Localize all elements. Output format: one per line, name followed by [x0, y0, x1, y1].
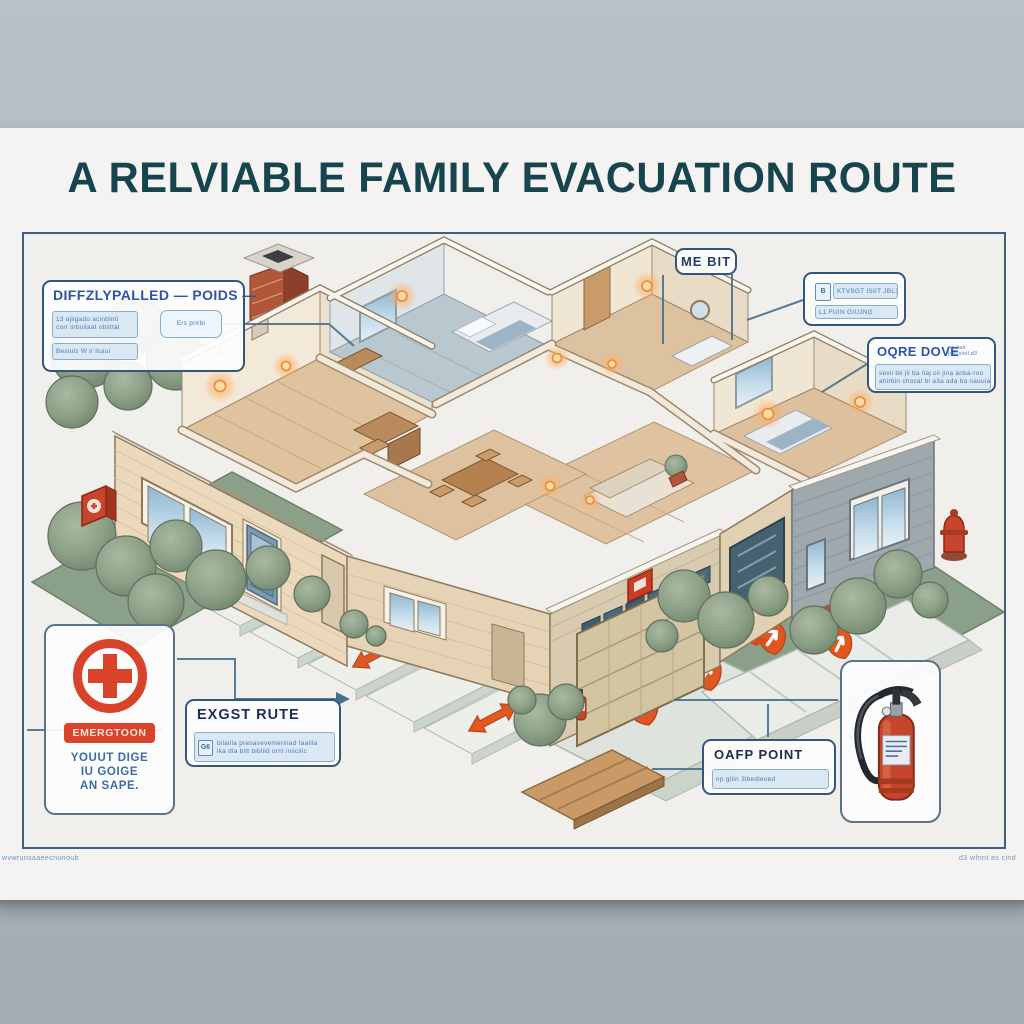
- preparation-tag: Ers prirbi: [160, 310, 222, 338]
- exit-route-icon: G6: [198, 740, 213, 756]
- fire-extinguisher-icon: [842, 662, 939, 821]
- gather-point-note: np gtiin 3ibedieoed: [712, 769, 829, 789]
- footer-note-right: d3 wfnnt as cind: [959, 855, 1016, 862]
- emergency-sign-text: YOUUT DIGE IU GOIGE AN SAPE.: [46, 751, 173, 793]
- alarm-icon: B: [815, 283, 831, 301]
- fire-hydrant: [940, 509, 968, 561]
- alarm-panel: B KTVSGT ISIIT JBL3 L1 FUIN GIUJNG: [803, 272, 906, 326]
- fire-extinguisher-card: [840, 660, 941, 823]
- preparation-panel-title: DIFFZLYPALLED — POIDS —: [53, 287, 257, 303]
- emergency-sign: EMERGTOON YOUUT DIGE IU GOIGE AN SAPE.: [44, 624, 175, 815]
- alarm-row-2: L1 FUIN GIUJNG: [815, 305, 898, 319]
- preparation-panel: DIFFZLYPALLED — POIDS — 13 ajiigado acin…: [42, 280, 245, 372]
- route-note-superscript: no itan jaecsinil d3: [945, 345, 977, 357]
- alarm-row-1: KTVSGT ISIIT JBL3: [833, 283, 898, 299]
- red-cross-icon: [73, 639, 147, 713]
- roof-label: ME BIT: [675, 248, 737, 275]
- exit-route-note: G6 bilailla presavevemerinad taalila ika…: [194, 732, 335, 762]
- exit-route-panel: EXGST RUTE G6 bilailla presavevemerinad …: [185, 699, 341, 767]
- route-note-panel: OQRE DOVE no itan jaecsinil d3 sevii bii…: [867, 337, 996, 393]
- exit-route-title: EXGST RUTE: [197, 707, 300, 723]
- gather-point-title: OAFP POINT: [714, 747, 803, 762]
- gather-point-panel: OAFP POINT np gtiin 3ibedieoed: [702, 739, 836, 795]
- evacuation-poster: A RELVIABLE FAMILY EVACUATION ROUTE: [0, 128, 1024, 900]
- preparation-note-a: 13 ajiigado acinbinti corr inbuilaat obi…: [52, 311, 138, 338]
- route-note-body: sevii bii jii ba itaj cii jina anba-roo …: [875, 364, 991, 390]
- preparation-note-b: Besiulz W ir ituiui: [52, 343, 138, 360]
- emergency-badge: EMERGTOON: [64, 723, 154, 743]
- photo-of-poster: A RELVIABLE FAMILY EVACUATION ROUTE: [0, 0, 1024, 1024]
- poster-title: A RELVIABLE FAMILY EVACUATION ROUTE: [8, 154, 1017, 203]
- footer-note-left: wvwrunsaaeecnunoub: [2, 855, 79, 862]
- illustration-frame: DIFFZLYPALLED — POIDS — 13 ajiigado acin…: [22, 232, 1006, 849]
